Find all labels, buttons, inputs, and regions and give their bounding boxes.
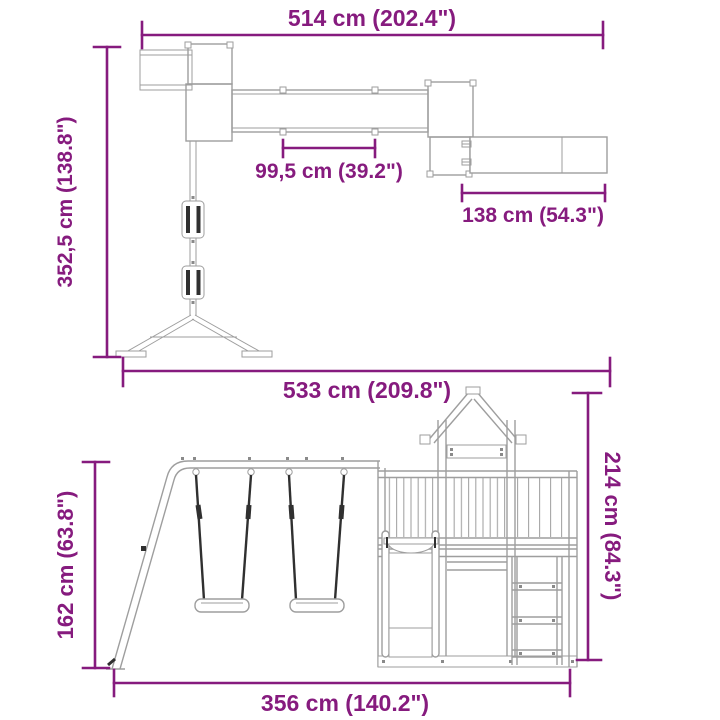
swing-hanger-2 — [182, 261, 204, 304]
dimension-label-overall-width-bottom: 533 cm (209.8") — [283, 377, 451, 403]
product-dimension-sheet: 514 cm (202.4") 99,5 cm (39.2") 138 cm (… — [0, 0, 720, 720]
plan-view-diagram: 514 cm (202.4") 99,5 cm (39.2") 138 cm (… — [54, 5, 607, 357]
dimension-diagram-canvas: 514 cm (202.4") 99,5 cm (39.2") 138 cm (… — [0, 0, 720, 720]
railing-middle — [448, 478, 506, 537]
swing-seat — [290, 599, 344, 612]
roof-board — [447, 445, 506, 458]
dimension-label-bridge-section: 99,5 cm (39.2") — [255, 160, 403, 183]
dimension-label-swing-frame-height: 162 cm (63.8") — [53, 491, 78, 640]
swing-hanger-1 — [182, 196, 204, 243]
dimension-label-overall-height: 214 cm (84.3") — [600, 452, 625, 601]
swing-frame-front-view — [106, 457, 380, 669]
bridge-top-view — [232, 87, 428, 135]
ladder-top-view — [140, 50, 192, 90]
ladder-front-view — [512, 557, 562, 665]
dimension-overall-depth — [94, 47, 120, 357]
front-view-diagram: 533 cm (209.8") 214 cm (84.3") 162 cm (6… — [53, 358, 625, 716]
railing-left — [388, 478, 436, 537]
slide-top-view — [462, 137, 607, 173]
swing-1 — [193, 469, 254, 612]
dimension-bridge-section — [283, 140, 375, 157]
dimension-label-overall-width-top: 514 cm (202.4") — [288, 5, 456, 31]
dimension-label-base-width: 356 cm (140.2") — [261, 690, 429, 716]
swing-seat — [195, 599, 249, 612]
dimension-swing-frame-height — [83, 462, 109, 668]
swing-beam-top-view — [182, 141, 204, 316]
dimension-slide-length — [462, 185, 605, 201]
railing-right — [516, 478, 568, 537]
swing-2 — [286, 469, 347, 612]
a-frame-leg-top-view — [116, 315, 272, 357]
dimension-label-overall-depth: 352,5 cm (138.8") — [54, 116, 77, 287]
dimension-label-slide-length: 138 cm (54.3") — [462, 204, 604, 227]
slide-front-view — [382, 531, 439, 657]
